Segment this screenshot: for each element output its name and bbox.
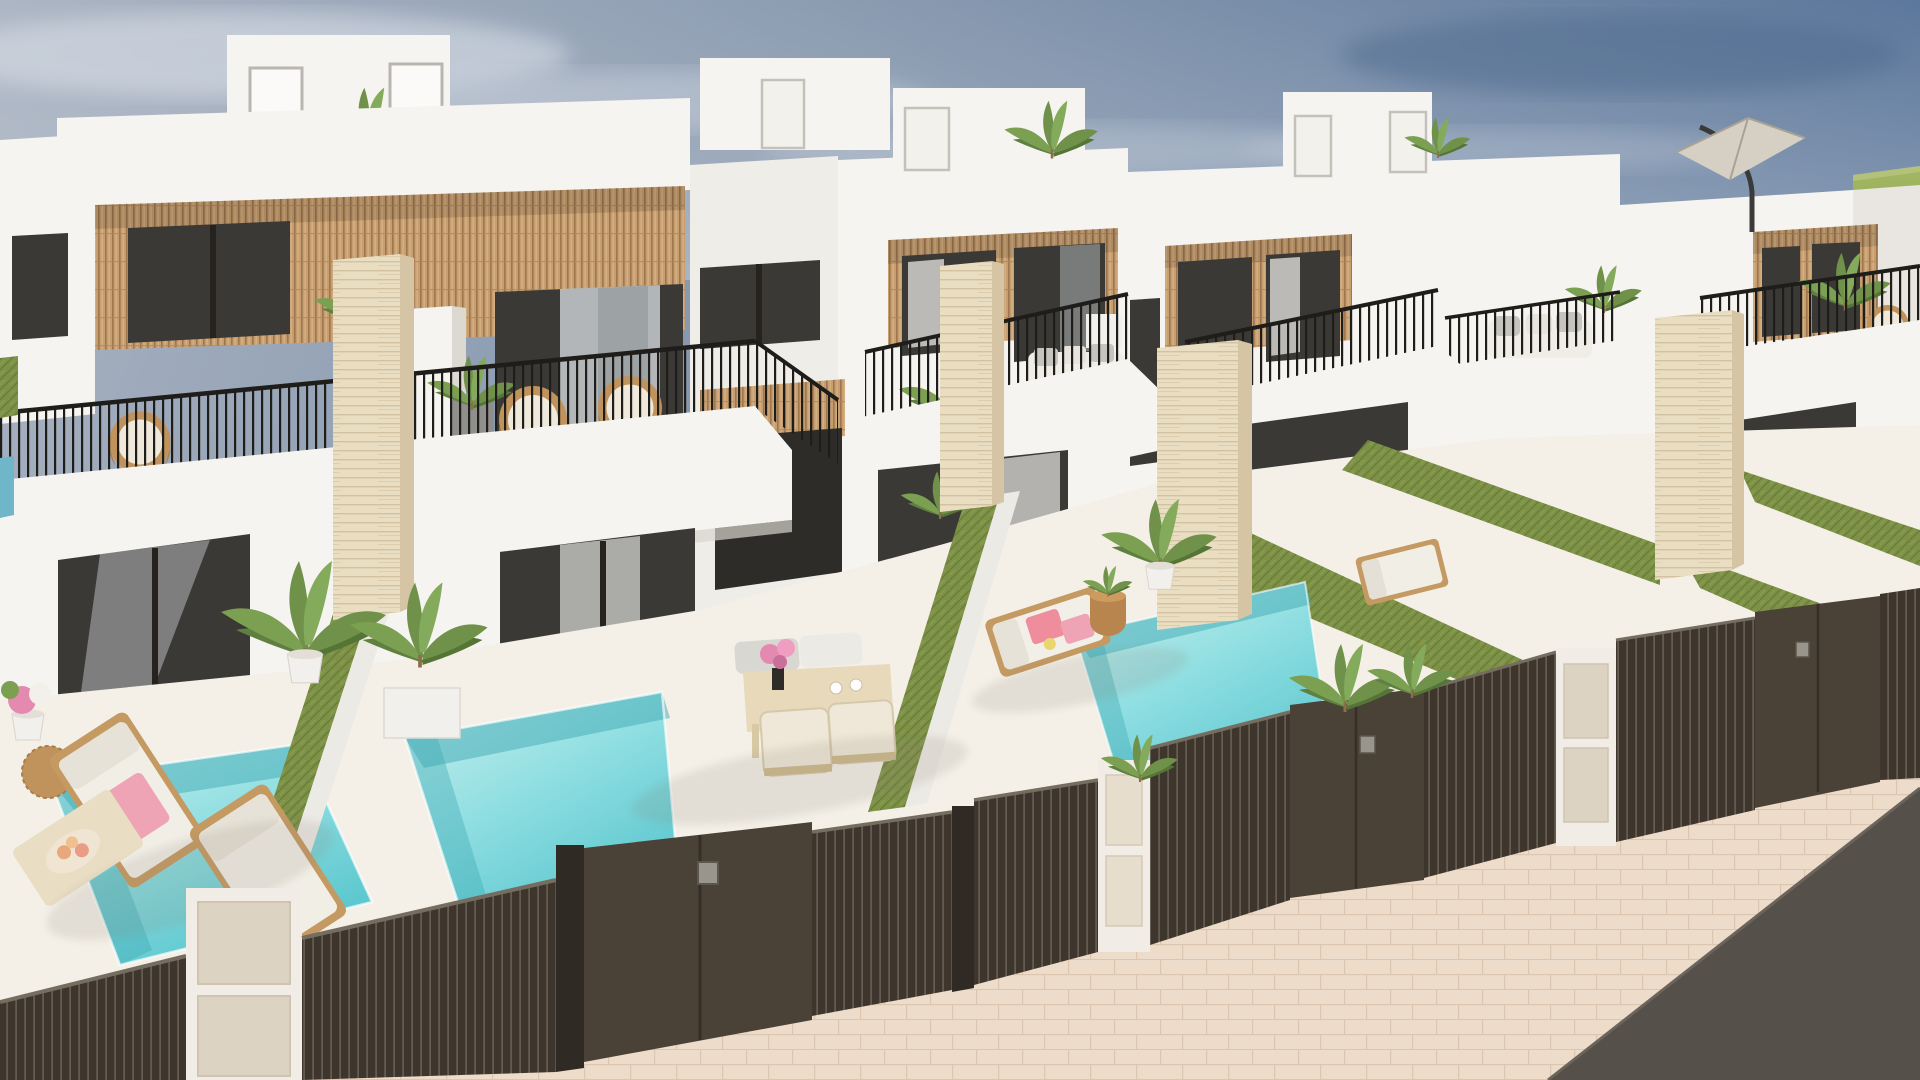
roof-box-c bbox=[893, 88, 1098, 172]
driveway-gate bbox=[812, 812, 952, 1016]
pedestrian-gate bbox=[584, 822, 812, 1062]
fence-section bbox=[1424, 652, 1556, 878]
fence-section bbox=[1616, 618, 1755, 842]
neighbour-lawn-sliver bbox=[0, 356, 18, 418]
pillar-a-b bbox=[940, 261, 1004, 512]
render-viewport bbox=[0, 0, 1920, 1080]
pedestrian-gate bbox=[1290, 688, 1424, 898]
gate-latch-plate bbox=[698, 862, 718, 884]
pillar-c-d bbox=[1655, 310, 1744, 580]
gate-latch-plate bbox=[1360, 736, 1375, 753]
villa-render-illustration bbox=[0, 0, 1920, 1080]
gate-pillar-white bbox=[1098, 760, 1150, 952]
neighbour-pool-sliver bbox=[0, 456, 14, 518]
villa-l-side-window bbox=[12, 233, 68, 340]
roof-box-b bbox=[700, 58, 890, 150]
gate-pillar-white bbox=[186, 888, 302, 1080]
pedestrian-gate bbox=[1755, 596, 1880, 808]
pillar-l-a bbox=[333, 254, 414, 620]
gate-latch-plate bbox=[1796, 642, 1809, 657]
villa-l-balcony-window bbox=[128, 221, 290, 343]
gate-post bbox=[952, 806, 974, 992]
white-planter-box bbox=[384, 688, 460, 738]
gate-pillar-white bbox=[1556, 648, 1616, 846]
fence-section bbox=[1880, 588, 1920, 780]
gate-post bbox=[556, 845, 584, 1072]
fence-section bbox=[974, 780, 1098, 985]
